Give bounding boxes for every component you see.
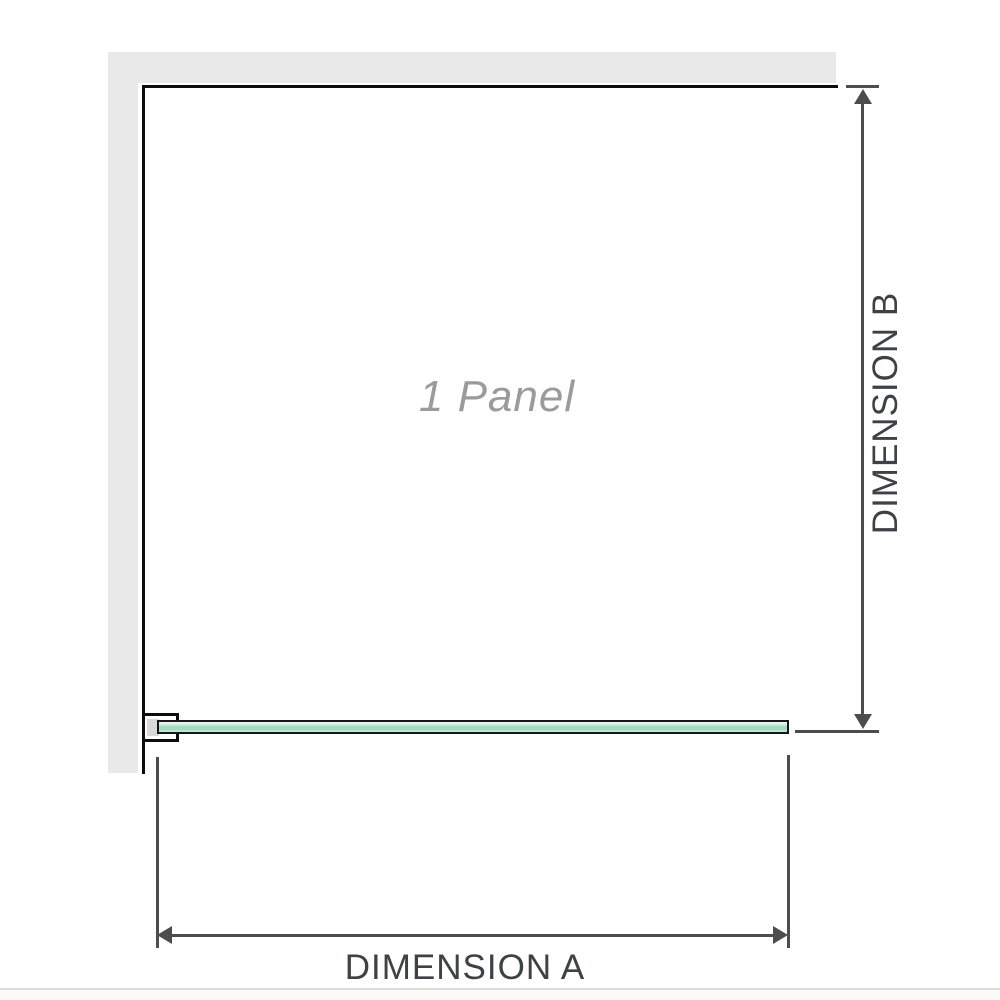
- arrow-down-icon: [854, 714, 872, 729]
- dimension-b-label: DIMENSION B: [866, 292, 906, 534]
- dimension-b-tick-top: [846, 85, 879, 88]
- shower-panel-diagram: 1 Panel DIMENSION B DIMENSION A: [0, 0, 1000, 1000]
- panel-outline-left: [142, 85, 145, 774]
- glass-panel: [157, 720, 789, 734]
- dimension-a-extension-left: [156, 757, 159, 948]
- arrow-up-icon: [854, 89, 872, 104]
- side-wall: [108, 52, 138, 773]
- dimension-b-line: [861, 100, 864, 718]
- back-wall: [108, 52, 836, 83]
- dimension-a-line: [170, 934, 775, 937]
- dimension-a-label: DIMENSION A: [345, 948, 585, 988]
- panel-outline-top: [142, 85, 838, 88]
- dimension-b-tick-bottom: [795, 730, 879, 733]
- panel-count-label: 1 Panel: [419, 372, 575, 422]
- bottom-strip: [0, 990, 1000, 1000]
- arrow-right-icon: [773, 926, 788, 944]
- dimension-a-extension-right: [787, 755, 790, 948]
- arrow-left-icon: [157, 926, 172, 944]
